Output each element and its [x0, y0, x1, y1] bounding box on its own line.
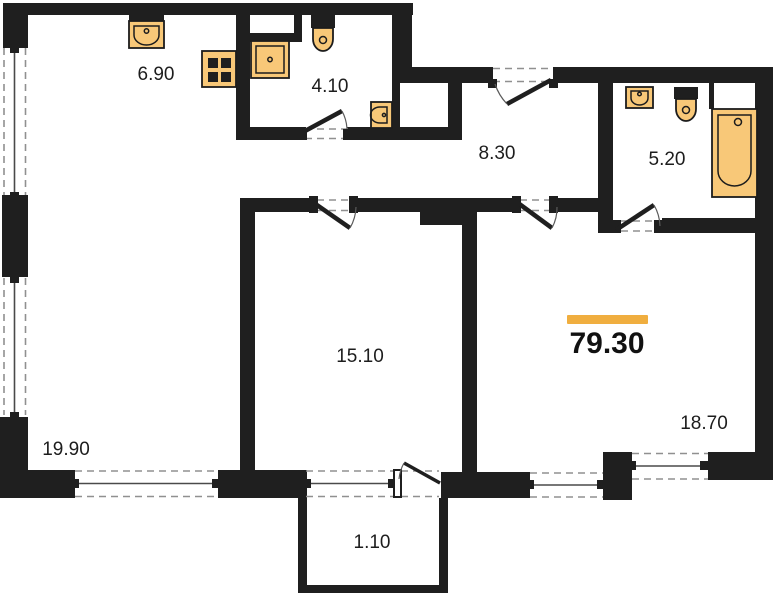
room-area-label-living-room: 18.70: [680, 413, 728, 434]
window-living-kitchen: [71, 471, 220, 497]
wall-segment-bath-small-bottom-east: [347, 127, 462, 140]
wall-segment-top: [3, 3, 413, 15]
wall-segment-balcony-bottom: [298, 585, 448, 593]
door-bedroom: [309, 196, 358, 228]
walls: [0, 3, 773, 593]
wall-segment-top-right-b: [553, 67, 773, 83]
wall-segment-tub-partition: [709, 83, 714, 109]
floor-plan: 6.90 4.10 8.30 5.20 15.10 18.70 19.90 1.…: [0, 0, 773, 600]
wall-segment-middle-c: [558, 198, 603, 212]
sink-large-bath-icon: [626, 87, 653, 108]
wall-segment-bottom-b: [218, 470, 307, 498]
washing-machine-icon: [251, 41, 289, 78]
window-left-upper: [4, 45, 26, 200]
total-area-label: 79.30: [569, 327, 644, 360]
room-area-label-bathroom-small: 4.10: [312, 76, 349, 97]
wall-segment-bottom-step: [603, 452, 632, 500]
door-bathroom-large: [612, 205, 663, 233]
door-entry: [488, 69, 558, 105]
wall-segment-top-left-corner: [3, 3, 28, 48]
room-area-label-bathroom-large: 5.20: [649, 149, 686, 170]
wall-segment-balcony-left: [298, 498, 307, 593]
wall-segment-bedroom-living-divider: [462, 212, 477, 472]
wall-segment-duct-kitchen-right: [294, 15, 302, 37]
total-area-accent-bar: [567, 315, 648, 324]
wall-segment-bath-large-bottom: [662, 218, 773, 233]
wall-segment-left-mid: [2, 195, 28, 277]
room-area-label-bedroom: 15.10: [336, 346, 384, 367]
wall-segment-top-right-a: [392, 67, 493, 83]
wall-segment-bottom-a: [0, 470, 75, 498]
room-area-label-kitchen: 6.90: [138, 64, 175, 85]
toilet-small-bath-icon: [311, 15, 335, 51]
wall-segment-bottom-right: [708, 452, 773, 480]
wall-segment-balcony-right: [439, 498, 448, 593]
floor-plan-drawing: 6.90 4.10 8.30 5.20 15.10 18.70 19.90 1.…: [0, 0, 773, 600]
wall-segment-middle-b: [357, 198, 513, 212]
window-left-lower: [4, 275, 26, 420]
wall-segment-bottom-c: [441, 472, 530, 498]
wall-segment-bedroom-left: [240, 198, 255, 470]
room-area-label-living-kitchen: 19.90: [42, 439, 90, 460]
stove-icon: [202, 51, 236, 87]
bathtub-icon: [712, 109, 757, 197]
kitchen-sink-icon: [129, 15, 164, 48]
hand-sink-icon: [371, 102, 393, 128]
toilet-large-bath-icon: [674, 87, 698, 121]
room-area-label-balcony: 1.10: [354, 532, 391, 553]
door-bathroom-small: [299, 111, 351, 140]
door-living-room: [512, 196, 558, 228]
window-living-upper: [628, 454, 708, 480]
door-balcony: [394, 463, 440, 497]
total-area: 79.30: [567, 315, 648, 360]
window-bedroom: [303, 471, 396, 497]
wall-segment-bath-small-bottom-west: [236, 127, 306, 140]
wall-segment-step: [392, 15, 412, 70]
window-living-lower: [526, 473, 605, 497]
room-area-label-hallway: 8.30: [479, 143, 516, 164]
